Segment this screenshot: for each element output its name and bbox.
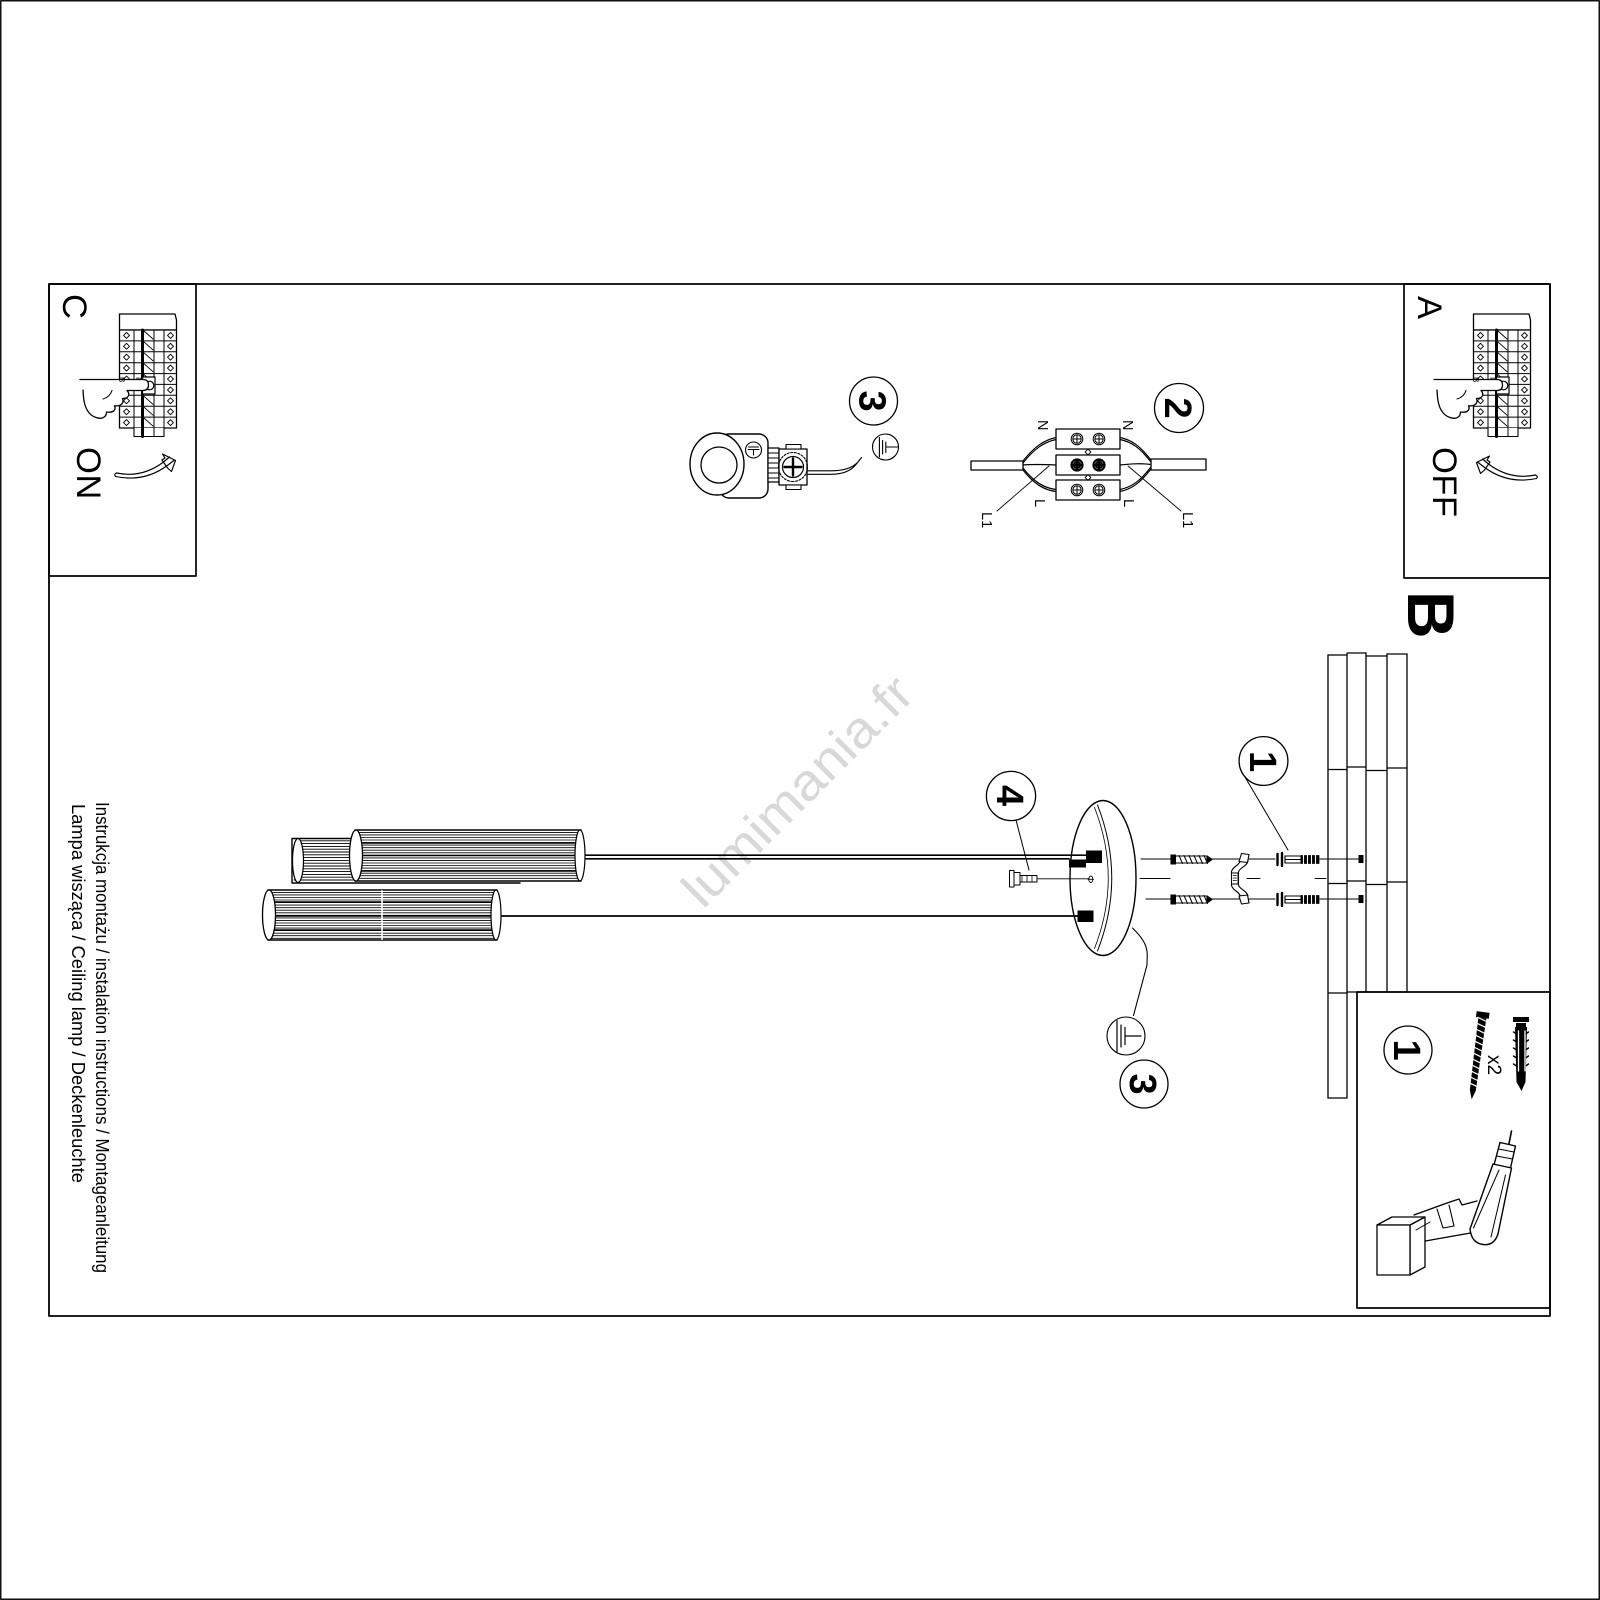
svg-text:B: B <box>1394 591 1468 639</box>
svg-text:1: 1 <box>1241 751 1283 772</box>
svg-text:2: 2 <box>1156 398 1198 419</box>
svg-text:4: 4 <box>988 785 1030 806</box>
svg-text:L1: L1 <box>978 512 994 528</box>
svg-text:ON: ON <box>69 447 107 500</box>
svg-text:3: 3 <box>851 391 893 412</box>
svg-text:L: L <box>1031 499 1047 507</box>
svg-text:Lampa wisząca / Ceiling lamp /: Lampa wisząca / Ceiling lamp / Deckenleu… <box>68 804 88 1183</box>
svg-text:N: N <box>1119 420 1135 430</box>
svg-text:1: 1 <box>1385 1040 1427 1061</box>
svg-text:L: L <box>1120 499 1136 507</box>
svg-text:OFF: OFF <box>1425 447 1463 517</box>
svg-text:x2: x2 <box>1483 1055 1504 1075</box>
svg-text:N: N <box>1034 420 1050 430</box>
svg-text:C: C <box>55 294 93 319</box>
svg-text:L1: L1 <box>1179 512 1195 528</box>
svg-text:3: 3 <box>1121 1074 1163 1095</box>
svg-text:Instrukcja montażu / instalati: Instrukcja montażu / instalation instruc… <box>92 802 112 1273</box>
svg-text:A: A <box>1410 296 1448 319</box>
